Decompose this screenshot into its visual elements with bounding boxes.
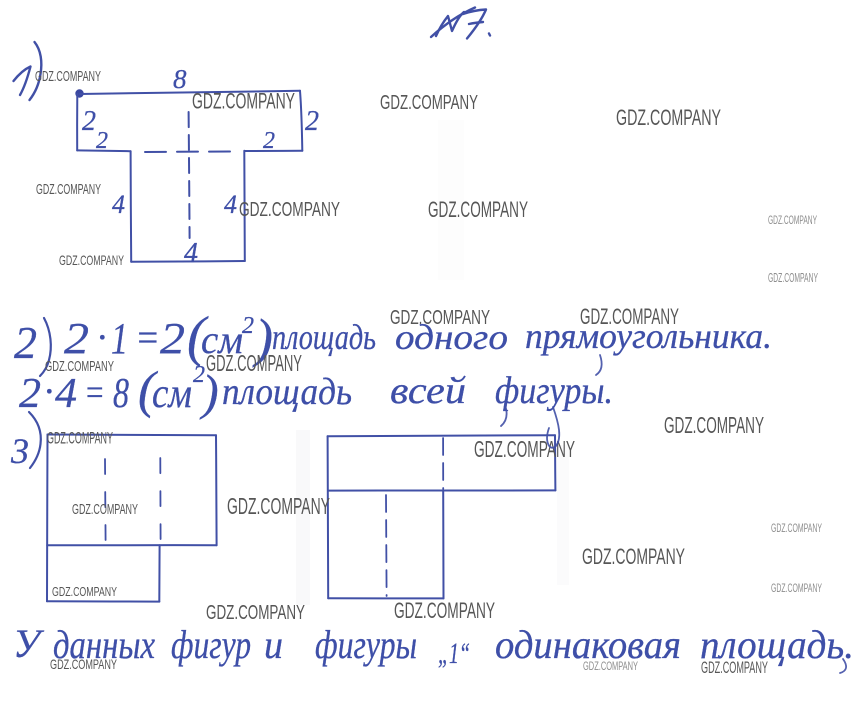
svg-text:4: 4 — [184, 238, 198, 269]
svg-text:2: 2 — [305, 106, 319, 137]
svg-text:GDZ.COMPANY: GDZ.COMPANY — [664, 412, 764, 438]
svg-text:GDZ.COMPANY: GDZ.COMPANY — [580, 304, 679, 329]
svg-text:GDZ.COMPANY: GDZ.COMPANY — [768, 213, 817, 227]
svg-text:2: 2 — [160, 314, 185, 363]
svg-text:2: 2 — [242, 313, 254, 339]
svg-text:GDZ.COMPANY: GDZ.COMPANY — [582, 544, 685, 569]
svg-text:8: 8 — [173, 64, 187, 94]
svg-text:GDZ.COMPANY: GDZ.COMPANY — [380, 91, 478, 114]
svg-text:фигуры: фигуры — [315, 622, 417, 667]
svg-text:GDZ.COMPANY: GDZ.COMPANY — [768, 270, 818, 285]
svg-text:GDZ.COMPANY: GDZ.COMPANY — [72, 501, 138, 518]
svg-text:2: 2 — [82, 106, 96, 137]
svg-text:GDZ.COMPANY: GDZ.COMPANY — [206, 350, 302, 376]
svg-text:фигуры.: фигуры. — [495, 370, 613, 412]
svg-text:GDZ.COMPANY: GDZ.COMPANY — [47, 430, 113, 448]
svg-text:1: 1 — [111, 314, 128, 363]
svg-text:4: 4 — [55, 371, 77, 417]
svg-text:GDZ.COMPANY: GDZ.COMPANY — [45, 359, 114, 375]
svg-text:2: 2 — [96, 128, 108, 154]
svg-text:2: 2 — [263, 128, 275, 154]
svg-text:GDZ.COMPANY: GDZ.COMPANY — [239, 198, 340, 221]
svg-text:GDZ.COMPANY: GDZ.COMPANY — [192, 89, 295, 114]
svg-text:2: 2 — [19, 371, 41, 417]
svg-text:GDZ.COMPANY: GDZ.COMPANY — [390, 306, 490, 329]
svg-text:GDZ.COMPANY: GDZ.COMPANY — [616, 105, 721, 130]
svg-text:8: 8 — [113, 371, 129, 417]
svg-text:GDZ.COMPANY: GDZ.COMPANY — [428, 197, 528, 222]
svg-text:фигур: фигур — [171, 622, 251, 667]
svg-text:3: 3 — [10, 431, 29, 471]
svg-text:·: · — [44, 371, 54, 413]
svg-text:4: 4 — [224, 190, 237, 219]
svg-text:см: см — [152, 371, 192, 417]
svg-text:GDZ.COMPANY: GDZ.COMPANY — [52, 584, 117, 599]
svg-text:и: и — [264, 622, 283, 667]
svg-text:GDZ.COMPANY: GDZ.COMPANY — [50, 657, 117, 672]
svg-text:GDZ.COMPANY: GDZ.COMPANY — [394, 598, 495, 623]
svg-text:GDZ.COMPANY: GDZ.COMPANY — [227, 493, 330, 519]
svg-text:GDZ.COMPANY: GDZ.COMPANY — [35, 68, 101, 85]
svg-text:=: = — [135, 315, 160, 360]
svg-text:4: 4 — [112, 190, 125, 219]
svg-text:GDZ.COMPANY: GDZ.COMPANY — [59, 253, 124, 268]
svg-text:GDZ.COMPANY: GDZ.COMPANY — [771, 521, 822, 535]
svg-text:GDZ.COMPANY: GDZ.COMPANY — [206, 601, 305, 624]
svg-text:GDZ.COMPANY: GDZ.COMPANY — [771, 581, 822, 595]
svg-text:GDZ.COMPANY: GDZ.COMPANY — [701, 659, 768, 677]
svg-text:GDZ.COMPANY: GDZ.COMPANY — [474, 436, 575, 462]
svg-text:GDZ.COMPANY: GDZ.COMPANY — [583, 659, 638, 673]
svg-text:2: 2 — [64, 314, 89, 363]
svg-text:GDZ.COMPANY: GDZ.COMPANY — [36, 181, 101, 198]
svg-text:=: = — [84, 372, 105, 414]
svg-text:·: · — [97, 317, 107, 359]
svg-text:площадь: площадь — [222, 371, 352, 413]
svg-text:2: 2 — [14, 317, 37, 368]
svg-text:всей: всей — [390, 370, 466, 412]
svg-text:„1“: „1“ — [438, 637, 470, 670]
